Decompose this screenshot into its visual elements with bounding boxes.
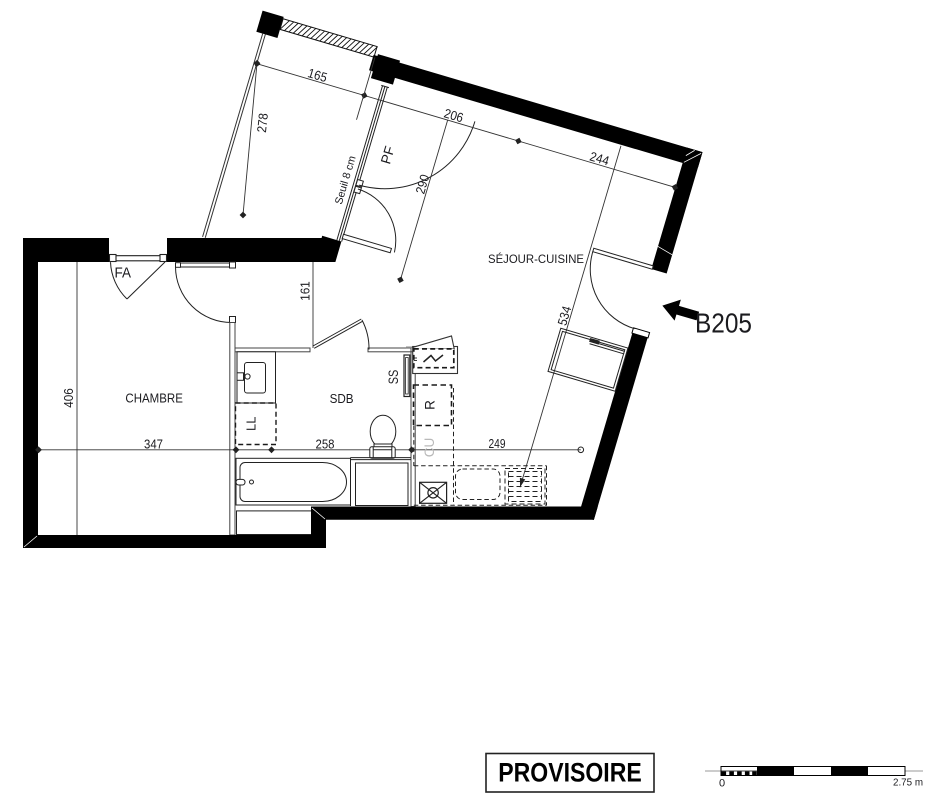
svg-text:278: 278 (254, 112, 271, 133)
svg-text:347: 347 (144, 437, 163, 452)
svg-text:SS: SS (386, 370, 401, 385)
svg-text:SDB: SDB (330, 391, 354, 406)
svg-text:161: 161 (297, 281, 312, 301)
svg-text:2.75 m: 2.75 m (893, 777, 923, 789)
svg-text:PROVISOIRE: PROVISOIRE (498, 758, 642, 788)
svg-text:SÉJOUR-CUISINE: SÉJOUR-CUISINE (488, 251, 584, 266)
svg-text:258: 258 (316, 437, 335, 452)
svg-text:B205: B205 (695, 308, 752, 339)
svg-text:FA: FA (115, 266, 132, 282)
svg-text:LL: LL (243, 417, 258, 431)
svg-text:406: 406 (61, 388, 76, 408)
svg-text:CHAMBRE: CHAMBRE (125, 391, 182, 406)
svg-text:249: 249 (489, 437, 506, 451)
svg-text:CU: CU (422, 438, 437, 458)
svg-text:0: 0 (719, 778, 725, 790)
svg-text:R: R (423, 400, 438, 410)
